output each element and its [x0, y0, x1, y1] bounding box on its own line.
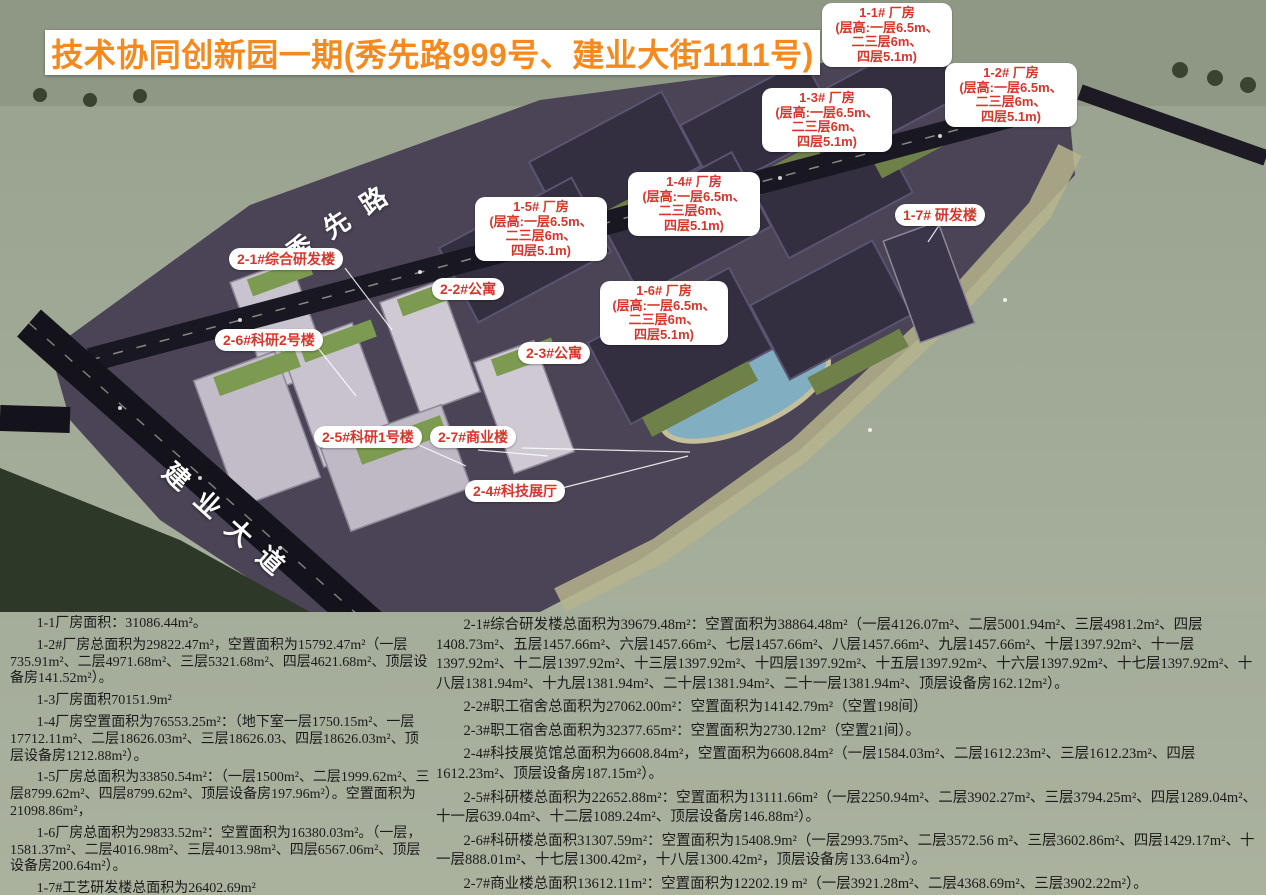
note-1-6: 1-6厂房总面积为29833.52m²：空置面积为16380.03m²。（一层，… [10, 826, 430, 876]
building-label-1-2: 1-2# 厂房 (层高:一层6.5m、 二三层6m、 四层5.1m) [945, 63, 1077, 127]
building-label-2-7: 2-7#商业楼 [430, 426, 516, 448]
page-title: 技术协同创新园一期(秀先路999号、建业大街1111号) [51, 30, 814, 76]
building-label-1-5: 1-5# 厂房 (层高:一层6.5m、 二三层6m、 四层5.1m) [475, 197, 607, 261]
note-2-6: 2-6#科研楼总面积31307.59m²：空置面积为15408.9m²（一层29… [436, 832, 1260, 871]
note-2-4: 2-4#科技展览馆总面积为6608.84m²，空置面积为6608.84m²（一层… [436, 745, 1260, 784]
note-1-2: 1-2#厂房总面积为29822.47m²，空置面积为15792.47m²（一层7… [10, 638, 430, 688]
building-label-2-4: 2-4#科技展厅 [465, 480, 565, 502]
building-label-1-7: 1-7# 研发楼 [895, 204, 985, 226]
note-1-4: 1-4厂房空置面积为76553.25m²：（地下室一层1750.15m²、一层1… [10, 715, 430, 765]
notes-column-right: 2-1#综合研发楼总面积为39679.48m²：空置面积为38864.48m²（… [436, 616, 1260, 895]
note-2-3: 2-3#职工宿舍总面积为32377.65m²：空置面积为2730.12m²（空置… [436, 722, 1260, 742]
building-label-2-2: 2-2#公寓 [432, 278, 504, 300]
building-label-1-1: 1-1# 厂房 (层高:一层6.5m、 二三层6m、 四层5.1m) [822, 3, 952, 67]
note-2-7: 2-7#商业楼总面积13612.11m²：空置面积为12202.19 m²（一层… [436, 875, 1260, 895]
note-1-1: 1-1厂房面积：31086.44m²。 [10, 616, 430, 633]
building-label-1-4: 1-4# 厂房 (层高:一层6.5m、 二三层6m、 四层5.1m) [628, 172, 760, 236]
building-label-2-5: 2-5#科研1号楼 [314, 426, 422, 448]
title-banner: 技术协同创新园一期(秀先路999号、建业大街1111号) [45, 30, 820, 75]
note-1-7: 1-7#工艺研发楼总面积为26402.69m² [10, 881, 430, 895]
note-1-3: 1-3厂房面积70151.9m² [10, 693, 430, 710]
building-label-1-6: 1-6# 厂房 (层高:一层6.5m、 二三层6m、 四层5.1m) [600, 281, 728, 345]
area-notes: 1-1厂房面积：31086.44m²。 1-2#厂房总面积为29822.47m²… [0, 612, 1266, 895]
note-2-5: 2-5#科研楼总面积为22652.88m²：空置面积为13111.66m²（一层… [436, 789, 1260, 828]
aerial-rendering-page: 技术协同创新园一期(秀先路999号、建业大街1111号) 秀先路 建业大道 1-… [0, 0, 1266, 895]
building-label-2-6: 2-6#科研2号楼 [215, 329, 323, 351]
notes-column-left: 1-1厂房面积：31086.44m²。 1-2#厂房总面积为29822.47m²… [10, 616, 430, 895]
note-2-2: 2-2#职工宿舍总面积为27062.00m²：空置面积为14142.79m²（空… [436, 698, 1260, 718]
building-label-2-3: 2-3#公寓 [518, 342, 590, 364]
note-1-5: 1-5厂房总面积为33850.54m²：（一层1500m²、二层1999.62m… [10, 770, 430, 820]
building-label-1-3: 1-3# 厂房 (层高:一层6.5m、 二三层6m、 四层5.1m) [762, 88, 892, 152]
building-label-2-1: 2-1#综合研发楼 [229, 248, 343, 270]
note-2-1: 2-1#综合研发楼总面积为39679.48m²：空置面积为38864.48m²（… [436, 616, 1260, 694]
